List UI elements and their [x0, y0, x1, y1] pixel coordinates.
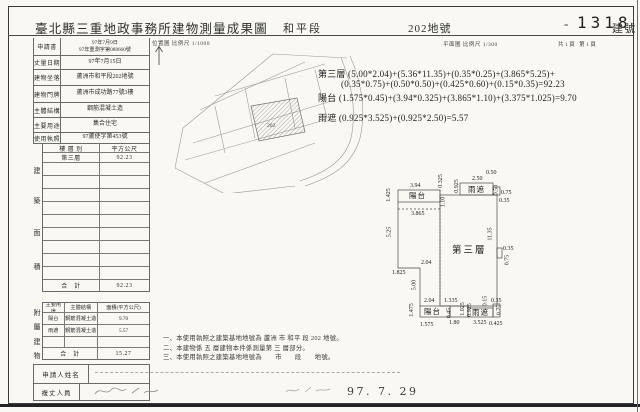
table-cell: 92.23 [100, 153, 149, 162]
side-label-building-area: 建 [33, 166, 41, 176]
plan-dim-label: 0.45 [446, 308, 452, 319]
page-title: 臺北縣三重地政事務所建物測量成果圖 [35, 18, 268, 37]
form-row: 建物門牌蘆洲市成功路77號3樓 [34, 86, 149, 103]
plan-dim-label: 1.475 [409, 303, 415, 317]
form-label: 主要用途 [34, 118, 61, 132]
plan-dim-label: 2.04 [424, 298, 435, 304]
plan-dim-label: 0.35 [499, 198, 510, 204]
table-cell: 主體結構 [65, 303, 98, 312]
table-cell [43, 189, 100, 201]
table-cell [43, 241, 100, 253]
table-cell [100, 163, 149, 175]
plan-dim-label: 1.025 [460, 302, 466, 316]
table-cell: 平方公尺 [100, 144, 149, 152]
plan-dim-label: 3.865 [411, 211, 425, 217]
table-cell: 面積(平方公尺) [98, 303, 149, 312]
table-cell [43, 228, 100, 240]
plan-dim-label: 1.335 [444, 298, 458, 304]
table-row: 雨遮鋼筋混凝土造5.57 [43, 325, 149, 337]
table-row [43, 337, 149, 348]
table-row [43, 176, 149, 189]
table-cell: 5.57 [98, 325, 149, 336]
plan-dim-label: 2.50 [472, 176, 483, 182]
calc-line-4: 雨遮 (0.925*3.525)+(0.925*2.50)=5.57 [318, 111, 468, 124]
form-row: 使用執照97蘆使字第453號 [34, 133, 149, 143]
plan-dim-label: 3.94 [410, 183, 421, 189]
table-row [43, 267, 149, 280]
table-cell: 鋼筋混凝土造 [65, 325, 98, 336]
side-label-annex: 物 [33, 351, 41, 361]
side-label-building-area: 面 [33, 228, 41, 238]
table-cell [43, 176, 100, 188]
form-row: 丈量日期97年7月15日 [34, 56, 149, 70]
table-row: 陽台鋼筋混凝土造9.70 [43, 313, 149, 325]
table-cell: 9.70 [98, 313, 149, 324]
table-cell [43, 267, 100, 279]
page-count-label: 共1頁 第1頁 [558, 40, 597, 48]
table-cell: 雨遮 [43, 325, 65, 336]
plan-dim-label: 第三層 [452, 247, 487, 257]
area-table: 樓 層 別平方公尺第三層92.23合 計92.23 [42, 143, 150, 292]
table-cell [43, 337, 65, 347]
form-value: 鋼筋混凝土造 [61, 103, 149, 117]
plan-dim-label: 0.50 [486, 170, 497, 176]
plan-dim-label: 0.35 [491, 298, 502, 304]
table-cell [43, 254, 100, 266]
table-cell [43, 202, 100, 214]
table-cell: 樓 層 別 [43, 144, 100, 152]
table-row: 第三層92.23 [43, 153, 149, 163]
side-label-annex: 建 [33, 337, 41, 347]
table-cell [100, 228, 149, 240]
form-value: 集合住宅 [61, 118, 149, 132]
plan-dim-label: 陽台 [424, 308, 441, 316]
table-row: 樓 層 別平方公尺 [43, 144, 149, 153]
table-row [43, 254, 149, 267]
plan-dim-label: 0.75 [504, 255, 510, 266]
plan-dim-label: 雨遮 [472, 309, 489, 317]
table-row [43, 202, 149, 215]
plan-dim-label: 陽台 [409, 192, 426, 200]
page-edge-line [0, 404, 640, 407]
table-cell: 15.27 [98, 348, 149, 359]
header-building-no-suffix: 建號 [612, 20, 636, 36]
form-label: 建物門牌 [34, 86, 61, 102]
table-row [43, 163, 149, 176]
table-row [43, 189, 149, 202]
plan-dim-label: 1.10 [440, 197, 446, 208]
plan-dim-label: 0.925 [454, 179, 460, 193]
date-stamp: 97. 7. 29 [347, 385, 418, 398]
form-value: 97年7月15日 [61, 56, 149, 69]
table-cell: 陽台 [43, 313, 65, 324]
table-cell [43, 163, 100, 175]
form-label: 主體結構 [34, 103, 61, 117]
table-cell [43, 215, 100, 227]
table-row [43, 241, 149, 254]
header-dash: - [564, 16, 568, 32]
plan-dim-label: 0.50 [493, 185, 499, 196]
plan-dim-label: 0.15 [482, 296, 488, 307]
plan-dim-label: 11.35 [488, 227, 494, 240]
table-cell: 鋼筋混凝土造 [65, 313, 98, 324]
note-line: 三、本使用執照之建築基地地號為 市 段 地號。 [163, 353, 431, 363]
floor-plan-scale-label: 平面圖 比例尺 1/300 [443, 40, 498, 48]
table-cell: 合 計 [43, 280, 100, 291]
plan-dim-label: 雨遮 [468, 186, 485, 194]
form-value: 97蘆使字第453號 [61, 133, 149, 143]
table-cell [100, 176, 149, 188]
table-cell [65, 337, 98, 347]
table-cell: 主要用途 [43, 303, 65, 312]
form-row: 主要用途集合住宅 [34, 118, 149, 133]
side-label-building-area: 積 [33, 262, 41, 272]
side-label-annex: 屬 [33, 322, 41, 332]
plan-dim-label: 2.04 [421, 260, 432, 266]
table-cell [100, 267, 149, 279]
plan-dim-label: 5.25 [386, 227, 392, 238]
table-row: 主要用途主體結構面積(平方公尺) [43, 303, 149, 313]
table-cell [100, 202, 149, 214]
plan-dim-label: 1.575 [420, 322, 434, 328]
handwriting-mark [92, 382, 167, 400]
floor-plan: 3.94陽台1.4253.8650.3251.100.925雨遮2.500.50… [380, 165, 600, 345]
table-cell: 合 計 [43, 348, 98, 359]
form-label: 丈量日期 [34, 56, 61, 69]
side-label-building-area: 築 [33, 196, 41, 206]
annex-table: 主要用途主體結構面積(平方公尺)陽台鋼筋混凝土造9.70雨遮鋼筋混凝土造5.57… [42, 302, 150, 360]
parcel-number-label: 202 [267, 123, 276, 129]
plan-dim-label: 0.35 [503, 246, 514, 252]
plan-dim-label: 3.525 [473, 320, 487, 326]
form-value: 蘆洲市成功路77號3樓 [61, 86, 149, 102]
plan-dim-label: 1.80 [449, 320, 460, 326]
calc-line-3: 陽台 (1.575*0.45)+(3.94*0.325)+(3.865*1.10… [318, 91, 577, 104]
table-cell [100, 254, 149, 266]
form-label: 建物坐落 [34, 70, 61, 85]
table-row [43, 215, 149, 228]
parcel-202-hatched [251, 98, 305, 141]
form-value: 97年7月9日 97年重測字第088660號 [61, 38, 149, 55]
form-label: 申請書 [34, 38, 61, 55]
table-cell: 第三層 [43, 153, 100, 162]
table-row [43, 228, 149, 241]
side-label-annex: 附 [33, 308, 41, 318]
form-row: 主體結構鋼筋混凝土造 [34, 103, 149, 118]
plan-dim-label: 1.425 [386, 188, 392, 202]
applicant-label: 申請人姓名 [34, 365, 89, 383]
plan-dim-label: 0.75 [501, 190, 512, 196]
form-value: 蘆洲市和平段202地號 [61, 70, 149, 85]
fold-line [95, 372, 400, 373]
plan-dim-label: 1.825 [392, 270, 406, 276]
form-table: 申請書97年7月9日 97年重測字第088660號丈量日期97年7月15日建物坐… [33, 38, 150, 144]
applicant-row: 申請人姓名 [33, 364, 150, 384]
handwriting-mark-2 [283, 383, 338, 397]
table-cell [98, 337, 149, 347]
plan-dim-label: 0.325 [438, 174, 444, 188]
table-row: 合 計15.27 [43, 348, 149, 359]
plan-dim-label: 0.425 [489, 321, 503, 327]
table-cell [100, 215, 149, 227]
form-row: 申請書97年7月9日 97年重測字第088660號 [34, 38, 149, 56]
table-cell [100, 189, 149, 201]
header-section: 和平段 [283, 20, 322, 36]
table-cell: 92.23 [100, 280, 149, 291]
table-row: 合 計92.23 [43, 280, 149, 291]
calc-line-2: (0.35*0.75)+(0.50*0.50)+(0.425*0.60)+(0.… [341, 79, 565, 89]
header-parcel-no: 202地號 [408, 20, 452, 36]
table-cell [100, 241, 149, 253]
form-row: 建物坐落蘆洲市和平段202地號 [34, 70, 149, 86]
note-line: 二、本建物係 五 層建物本件係測量第 三 層部分。 [163, 344, 431, 354]
plan-dim-label: 0.75 [496, 305, 502, 316]
plan-dim-label: 5.00 [411, 280, 417, 291]
form-label: 使用執照 [34, 133, 61, 143]
surveyor-label: 複丈人員 [34, 384, 80, 400]
page-edge-line-right [637, 0, 638, 412]
survey-document-page: 臺北縣三重地政事務所建物測量成果圖 和平段 202地號 - 1318 建號 位置… [0, 0, 640, 412]
